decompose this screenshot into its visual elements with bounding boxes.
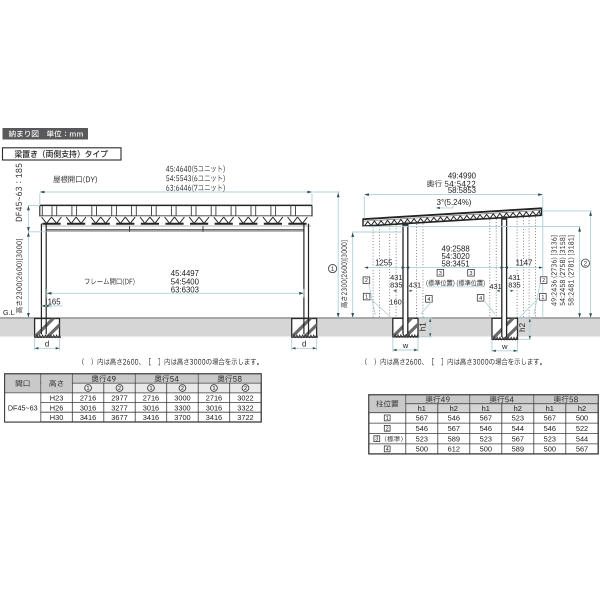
svg-text:2: 2 xyxy=(386,426,389,432)
svg-text:h1: h1 xyxy=(418,404,426,413)
svg-text:3416: 3416 xyxy=(206,413,222,422)
svg-text:546: 546 xyxy=(544,424,556,433)
svg-text:544: 544 xyxy=(512,424,524,433)
svg-text:2: 2 xyxy=(584,261,588,268)
svg-text:2: 2 xyxy=(181,386,184,392)
svg-text:2716: 2716 xyxy=(143,394,159,403)
svg-text:546: 546 xyxy=(416,424,428,433)
svg-text:3016: 3016 xyxy=(206,403,222,412)
svg-text:h1: h1 xyxy=(482,404,490,413)
svg-text:523: 523 xyxy=(480,434,492,443)
svg-text:3300: 3300 xyxy=(174,403,190,412)
svg-text:431: 431 xyxy=(409,280,421,289)
svg-text:612: 612 xyxy=(448,445,460,454)
svg-text:567: 567 xyxy=(448,424,460,433)
svg-text:w: w xyxy=(402,341,409,350)
svg-text:3: 3 xyxy=(375,437,378,443)
svg-text:3022: 3022 xyxy=(237,394,253,403)
svg-text:3416: 3416 xyxy=(143,413,159,422)
svg-text:160: 160 xyxy=(389,297,401,306)
svg-text:523: 523 xyxy=(544,434,556,443)
svg-text:500: 500 xyxy=(480,445,492,454)
svg-text:58:3451: 58:3451 xyxy=(442,259,470,268)
svg-text:523: 523 xyxy=(416,434,428,443)
svg-text:567: 567 xyxy=(416,414,428,423)
svg-text:58:5853: 58:5853 xyxy=(448,186,476,195)
svg-text:3322: 3322 xyxy=(237,403,253,412)
svg-text:835: 835 xyxy=(508,281,520,290)
svg-text:1: 1 xyxy=(365,295,368,301)
svg-text:567: 567 xyxy=(544,414,556,423)
svg-text:d: d xyxy=(45,339,49,348)
svg-text:h1: h1 xyxy=(546,404,554,413)
svg-text:3016: 3016 xyxy=(80,403,96,412)
svg-text:835: 835 xyxy=(390,281,402,290)
svg-text:3277: 3277 xyxy=(111,403,127,412)
svg-text:63:6303: 63:6303 xyxy=(171,286,199,295)
svg-text:4: 4 xyxy=(386,447,389,453)
svg-text:3°(5.24%): 3°(5.24%) xyxy=(437,198,472,207)
svg-text:h1: h1 xyxy=(418,322,427,331)
svg-text:2: 2 xyxy=(365,278,368,284)
svg-text:546: 546 xyxy=(448,414,460,423)
svg-text:523: 523 xyxy=(512,414,524,423)
svg-text:589: 589 xyxy=(448,434,460,443)
svg-text:431: 431 xyxy=(489,282,501,291)
svg-text:49:4990: 49:4990 xyxy=(448,171,477,180)
svg-text:3000: 3000 xyxy=(174,394,190,403)
svg-text:4: 4 xyxy=(427,297,430,303)
svg-text:567: 567 xyxy=(576,445,588,454)
svg-text:3416: 3416 xyxy=(80,413,96,422)
svg-text:2977: 2977 xyxy=(111,394,127,403)
svg-text:h2: h2 xyxy=(578,404,586,413)
svg-text:2: 2 xyxy=(244,386,247,392)
svg-text:2716: 2716 xyxy=(80,394,96,403)
svg-text:1: 1 xyxy=(212,386,215,392)
svg-text:1: 1 xyxy=(331,266,335,273)
svg-text:4: 4 xyxy=(479,296,482,302)
svg-text:h2: h2 xyxy=(514,404,522,413)
svg-text:567: 567 xyxy=(512,434,524,443)
svg-text:3: 3 xyxy=(439,271,442,277)
svg-text:1: 1 xyxy=(149,386,152,392)
svg-text:500: 500 xyxy=(416,445,428,454)
svg-text:2716: 2716 xyxy=(206,394,222,403)
svg-text:500: 500 xyxy=(544,445,556,454)
svg-text:1: 1 xyxy=(386,416,389,422)
svg-text:522: 522 xyxy=(576,424,588,433)
svg-text:H26: H26 xyxy=(50,403,64,412)
svg-text:165: 165 xyxy=(48,298,62,307)
svg-text:2: 2 xyxy=(118,386,121,392)
svg-text:DF45~63: DF45~63 xyxy=(8,403,38,412)
svg-text:544: 544 xyxy=(576,434,588,443)
svg-text:3016: 3016 xyxy=(143,403,159,412)
svg-text:d: d xyxy=(302,339,306,348)
svg-text:3: 3 xyxy=(470,271,473,277)
svg-text:500: 500 xyxy=(576,414,588,423)
svg-text:H30: H30 xyxy=(50,413,64,422)
svg-text:h2: h2 xyxy=(450,404,458,413)
svg-text:h2: h2 xyxy=(518,322,527,331)
svg-text:567: 567 xyxy=(480,414,492,423)
svg-text:589: 589 xyxy=(512,445,524,454)
svg-text:w: w xyxy=(501,342,508,351)
svg-text:3677: 3677 xyxy=(111,413,127,422)
svg-text:3722: 3722 xyxy=(237,413,253,422)
svg-text:1: 1 xyxy=(541,295,544,301)
svg-text:3700: 3700 xyxy=(174,413,190,422)
svg-text:2: 2 xyxy=(542,278,545,284)
svg-text:G.L: G.L xyxy=(3,308,15,317)
svg-text:1255: 1255 xyxy=(375,258,393,267)
svg-text:H23: H23 xyxy=(50,394,64,403)
svg-text:1: 1 xyxy=(87,386,90,392)
svg-text:546: 546 xyxy=(480,424,492,433)
svg-text:1147: 1147 xyxy=(516,258,533,267)
